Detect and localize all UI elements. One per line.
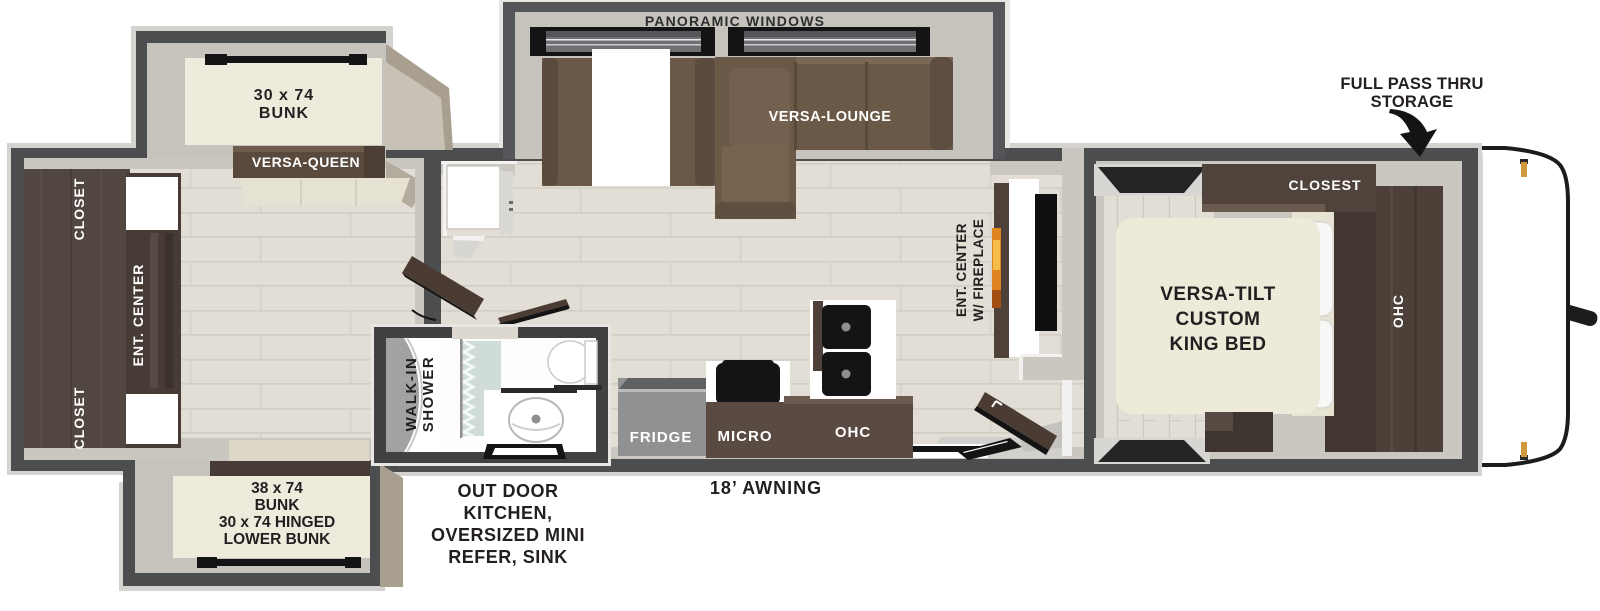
svg-text:REFER, SINK: REFER, SINK [448, 547, 568, 567]
svg-text:CUSTOM: CUSTOM [1176, 309, 1261, 330]
svg-text:38 x 74: 38 x 74 [251, 480, 303, 497]
svg-text:LOWER BUNK: LOWER BUNK [224, 531, 332, 548]
svg-text:VERSA-QUEEN: VERSA-QUEEN [252, 154, 360, 170]
svg-text:OVERSIZED MINI: OVERSIZED MINI [431, 525, 585, 545]
svg-text:SHOWER: SHOWER [420, 356, 437, 433]
svg-text:MICRO: MICRO [718, 428, 773, 445]
svg-text:KITCHEN,: KITCHEN, [464, 503, 553, 523]
svg-text:W/ FIREPLACE: W/ FIREPLACE [971, 219, 986, 322]
svg-text:FULL PASS THRU: FULL PASS THRU [1340, 75, 1483, 93]
svg-text:VERSA-TILT: VERSA-TILT [1160, 284, 1275, 305]
svg-text:18’ AWNING: 18’ AWNING [710, 478, 822, 498]
svg-text:WALK-IN: WALK-IN [403, 357, 420, 432]
svg-text:KING BED: KING BED [1170, 334, 1267, 355]
svg-text:CLOSET: CLOSET [71, 178, 87, 241]
svg-text:BUNK: BUNK [259, 105, 309, 122]
svg-text:ENT. CENTER: ENT. CENTER [130, 264, 146, 367]
svg-text:30 x 74 HINGED: 30 x 74 HINGED [219, 514, 335, 531]
svg-text:FRIDGE: FRIDGE [630, 429, 693, 446]
svg-text:ENT. CENTER: ENT. CENTER [954, 223, 969, 317]
svg-text:OHC: OHC [1390, 294, 1406, 328]
svg-text:VERSA-LOUNGE: VERSA-LOUNGE [769, 109, 892, 125]
svg-text:30 x 74: 30 x 74 [254, 87, 314, 104]
svg-text:OHC: OHC [835, 424, 871, 441]
svg-text:STORAGE: STORAGE [1371, 93, 1454, 111]
svg-text:BUNK: BUNK [255, 497, 301, 514]
svg-text:CLOSEST: CLOSEST [1288, 177, 1361, 193]
svg-text:OUT DOOR: OUT DOOR [458, 481, 559, 501]
svg-text:PANORAMIC WINDOWS: PANORAMIC WINDOWS [645, 13, 825, 29]
svg-text:CLOSET: CLOSET [71, 387, 87, 450]
